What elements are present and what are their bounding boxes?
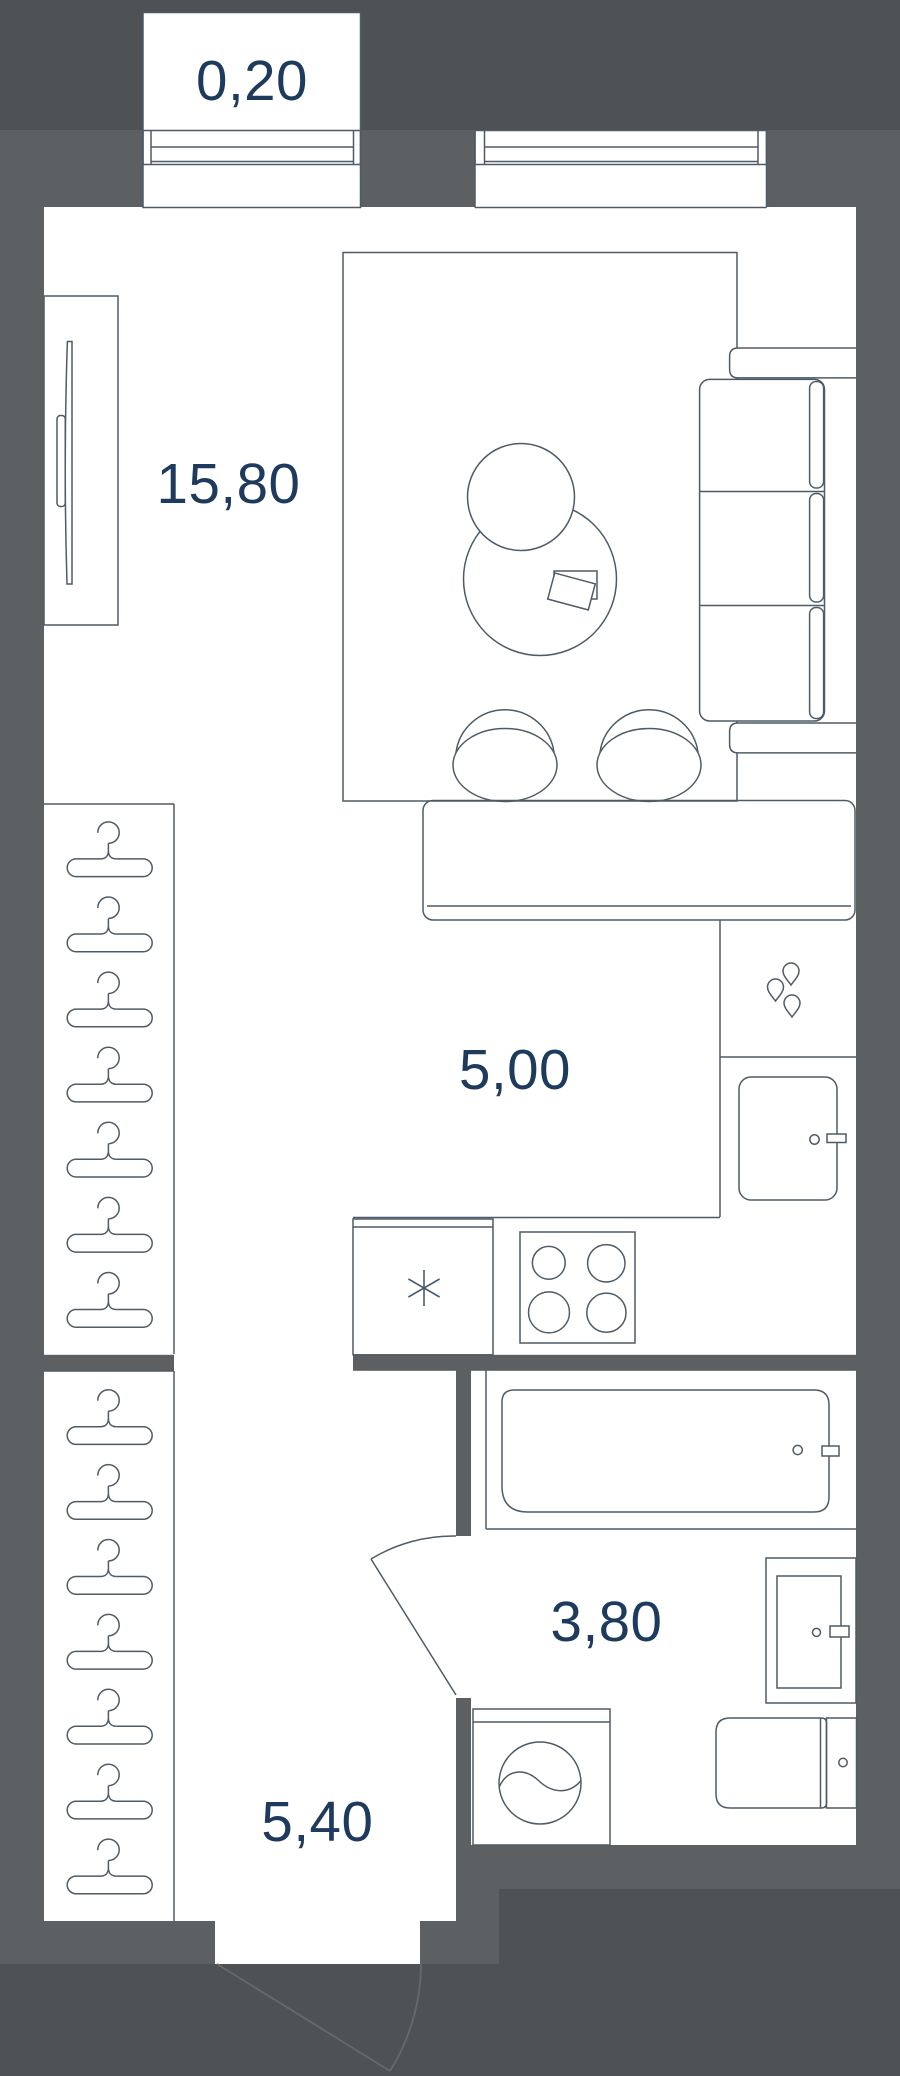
svg-text:0,20: 0,20 <box>196 49 308 112</box>
svg-text:5,40: 5,40 <box>261 1790 373 1853</box>
svg-text:5,00: 5,00 <box>459 1038 571 1101</box>
svg-text:3,80: 3,80 <box>551 1590 663 1653</box>
svg-text:15,80: 15,80 <box>157 452 301 515</box>
